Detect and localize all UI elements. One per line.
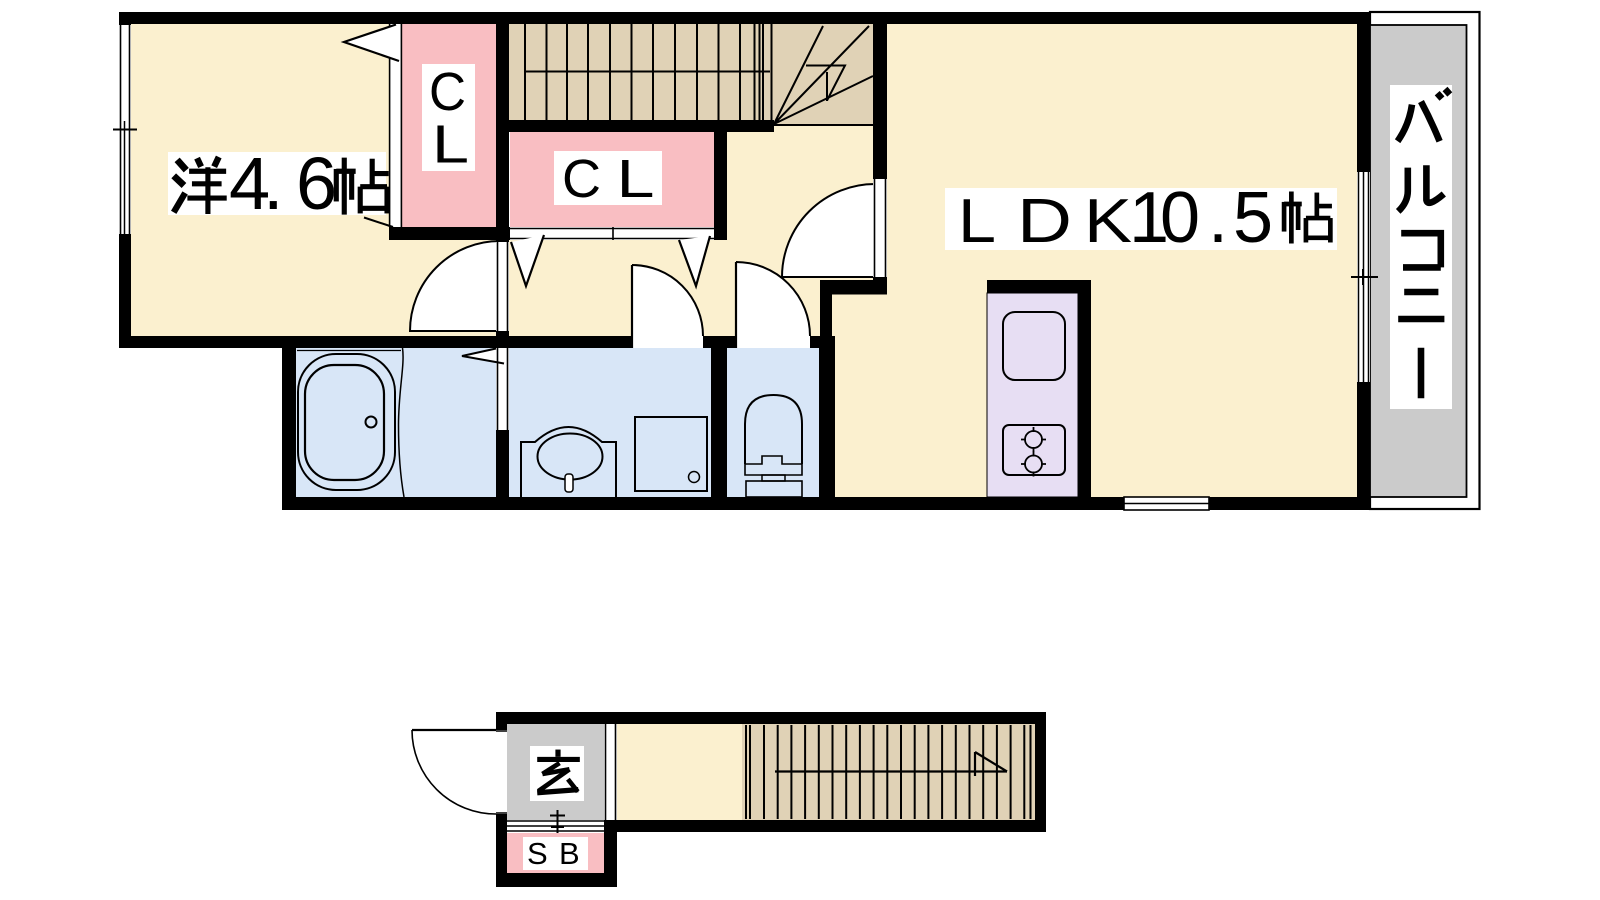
svg-text:L: L <box>432 115 469 175</box>
svg-text:D: D <box>1017 187 1072 256</box>
svg-text:.: . <box>263 142 284 225</box>
svg-text:0: 0 <box>1160 178 1200 258</box>
svg-text:S: S <box>527 836 548 871</box>
svg-text:6: 6 <box>296 142 337 225</box>
svg-text:5: 5 <box>1233 178 1273 258</box>
svg-text:C: C <box>562 149 601 209</box>
svg-text:C: C <box>429 62 466 122</box>
svg-text:L: L <box>958 187 996 256</box>
svg-text:K: K <box>1084 187 1132 256</box>
svg-text:B: B <box>559 836 580 871</box>
svg-text:.: . <box>1208 178 1228 258</box>
svg-text:L: L <box>617 149 655 209</box>
